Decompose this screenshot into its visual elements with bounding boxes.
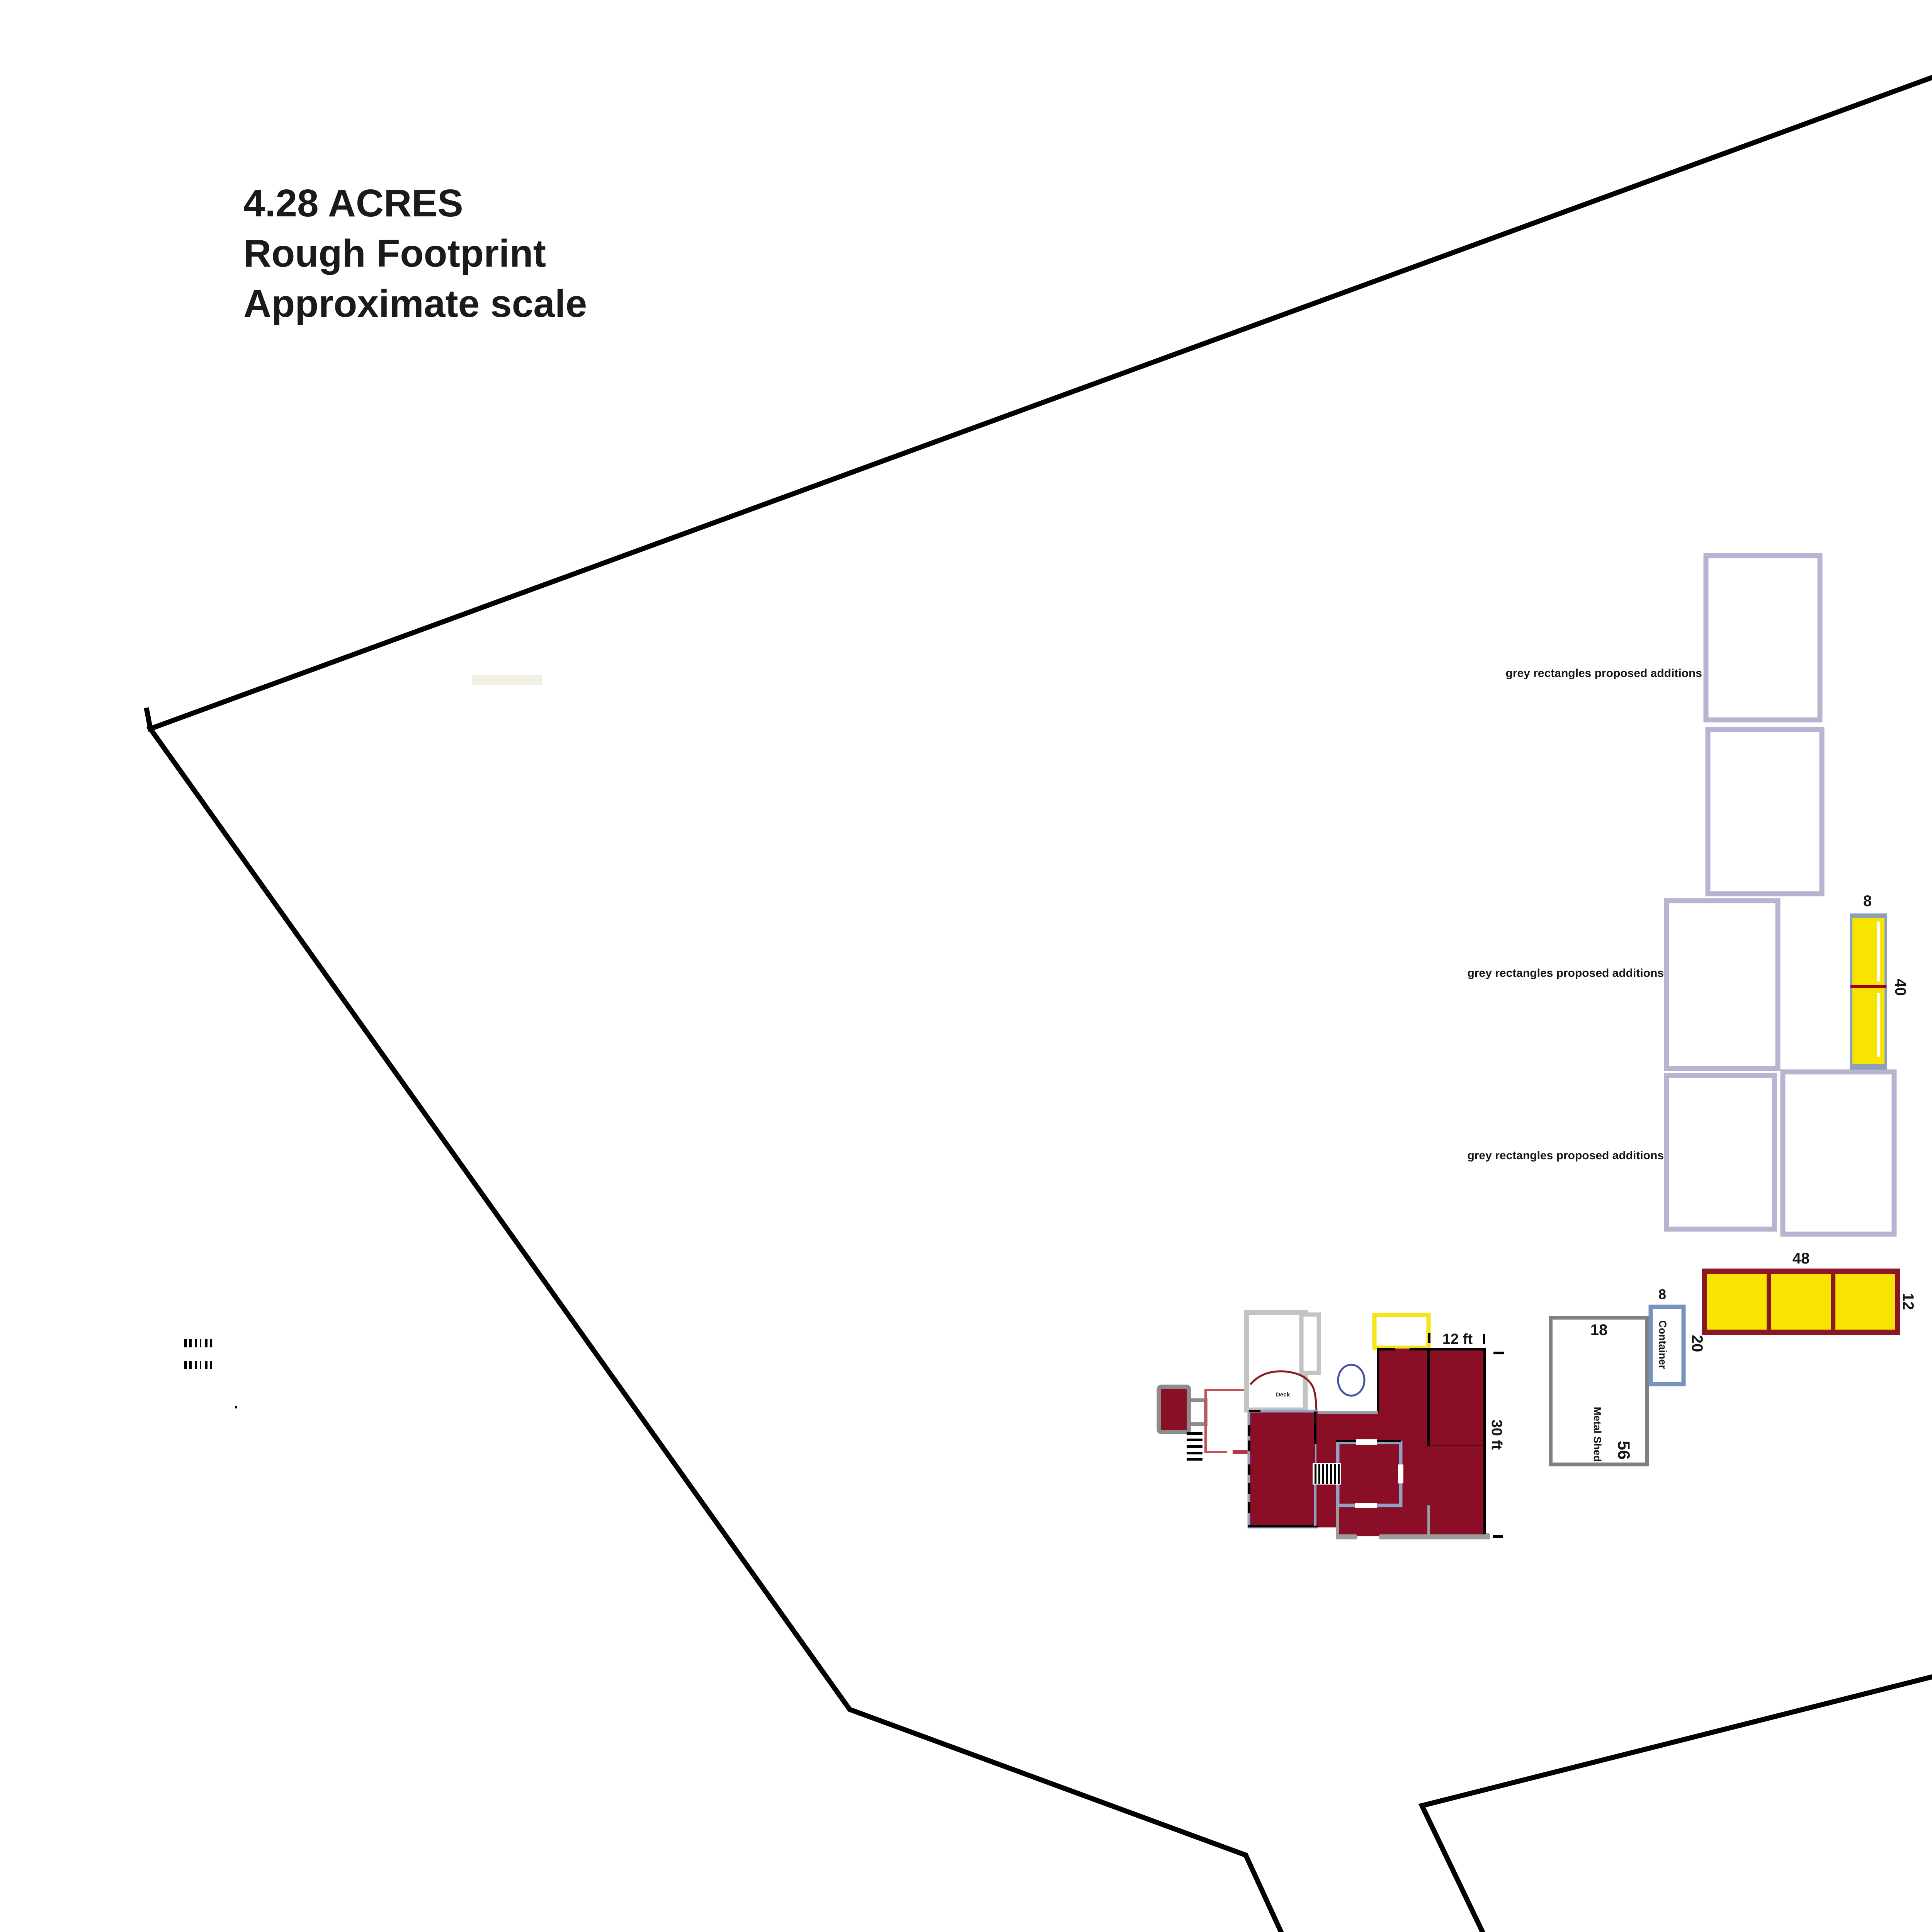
carport-outline	[1851, 915, 1886, 1068]
beige-smudge	[472, 675, 542, 685]
inner-room-black-top-right	[1377, 1440, 1401, 1442]
carport: 8 40	[1850, 893, 1909, 1068]
shed-width-dim: 18	[1590, 1321, 1608, 1338]
carport-bottom-cap	[1850, 1064, 1887, 1068]
red-walkway-dash	[1233, 1450, 1248, 1454]
house-complex: Deck	[1159, 1313, 1505, 1539]
carport-divider	[1850, 985, 1886, 988]
carport-top-cap	[1850, 913, 1887, 918]
outbuilding	[1159, 1387, 1189, 1432]
site-plan-drawing: 4.28 ACRES Rough Footprint Approximate s…	[0, 0, 1932, 1932]
stray-dot	[235, 1406, 237, 1408]
container-label: Container	[1657, 1320, 1668, 1369]
proposed-additions	[1667, 556, 1894, 1234]
bays-width-dim: 12	[1900, 1293, 1917, 1310]
title-block: 4.28 ACRES Rough Footprint Approximate s…	[243, 182, 587, 325]
bays-length-dim: 48	[1793, 1250, 1810, 1267]
additions-label-2: grey rectangles proposed additions	[1468, 967, 1664, 980]
blue-circle	[1338, 1365, 1364, 1396]
metal-shed: 18 Metal Shed 56	[1551, 1318, 1647, 1464]
yellow-square	[1374, 1315, 1429, 1348]
carport-highlight-lower	[1877, 993, 1880, 1057]
additions-label-3: grey rectangles proposed additions	[1468, 1149, 1664, 1162]
house-left-wing	[1249, 1411, 1316, 1527]
proposed-addition-rect-3	[1667, 901, 1778, 1068]
outbuilding-steps	[1187, 1432, 1202, 1461]
carport-length-dim: 40	[1892, 979, 1909, 996]
inner-room-door-bottom	[1355, 1503, 1377, 1508]
bays-divider-2	[1831, 1273, 1835, 1331]
red-walkway	[1206, 1390, 1247, 1452]
container-length-dim: 20	[1689, 1335, 1706, 1352]
bays-outline	[1704, 1271, 1898, 1332]
bays-divider-1	[1767, 1273, 1771, 1331]
site-plan-page: 4.28 ACRES Rough Footprint Approximate s…	[0, 0, 1932, 1932]
carport-width-dim: 8	[1863, 893, 1872, 910]
container: 8 Container 20	[1651, 1286, 1706, 1384]
boundary-corner-tail	[147, 710, 150, 729]
shed-length-dim: 56	[1614, 1441, 1633, 1460]
deck-label: Deck	[1276, 1391, 1290, 1398]
proposed-addition-rect-2	[1708, 730, 1822, 894]
inner-room-black-top-left	[1336, 1440, 1356, 1442]
house-top-left-block	[1377, 1349, 1429, 1413]
carport-highlight-upper	[1877, 922, 1880, 981]
deck-side-column	[1301, 1315, 1319, 1373]
right-wing-floor-line	[1430, 1445, 1483, 1446]
proposed-addition-rect-1	[1706, 556, 1820, 720]
container-width-dim: 8	[1658, 1286, 1666, 1302]
additions-label-1: grey rectangles proposed additions	[1506, 667, 1702, 680]
staircase	[1313, 1463, 1341, 1485]
left-middle-divider-blue	[1314, 1484, 1316, 1526]
yellow-bays: 48 12	[1704, 1250, 1917, 1332]
house-width-dim: 12 ft	[1442, 1331, 1473, 1347]
inner-room-door-right	[1398, 1464, 1403, 1483]
inner-room-door-top	[1356, 1439, 1377, 1445]
inner-room-outline	[1338, 1442, 1401, 1505]
left-tick-marks	[184, 1339, 237, 1408]
title-acreage: 4.28 ACRES	[243, 182, 463, 225]
house-right-wing	[1429, 1349, 1486, 1537]
house-depth-dim: 30 ft	[1488, 1420, 1505, 1450]
proposed-addition-rect-4	[1667, 1075, 1774, 1229]
title-line2: Rough Footprint	[243, 232, 546, 275]
proposed-addition-rect-5	[1783, 1072, 1894, 1234]
title-line3: Approximate scale	[243, 282, 587, 325]
metal-shed-label: Metal Shed	[1592, 1407, 1603, 1462]
inner-room	[1336, 1439, 1403, 1508]
